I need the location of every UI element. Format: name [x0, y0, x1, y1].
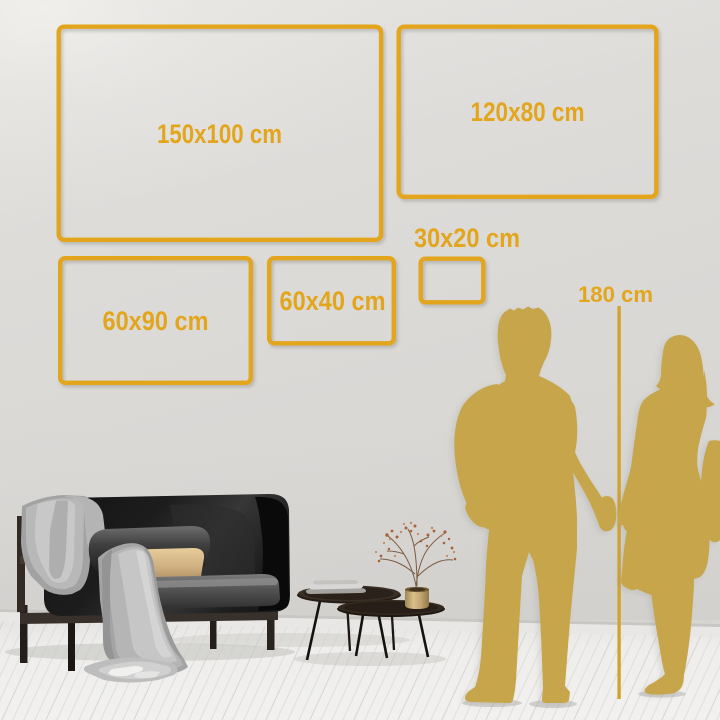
svg-text:60x40 cm: 60x40 cm [280, 286, 386, 316]
svg-text:30x20 cm: 30x20 cm [414, 223, 520, 253]
svg-text:120x80 cm: 120x80 cm [471, 97, 585, 127]
svg-text:150x100 cm: 150x100 cm [157, 119, 282, 149]
svg-text:60x90 cm: 60x90 cm [103, 306, 209, 336]
svg-text:180 cm: 180 cm [578, 282, 653, 307]
